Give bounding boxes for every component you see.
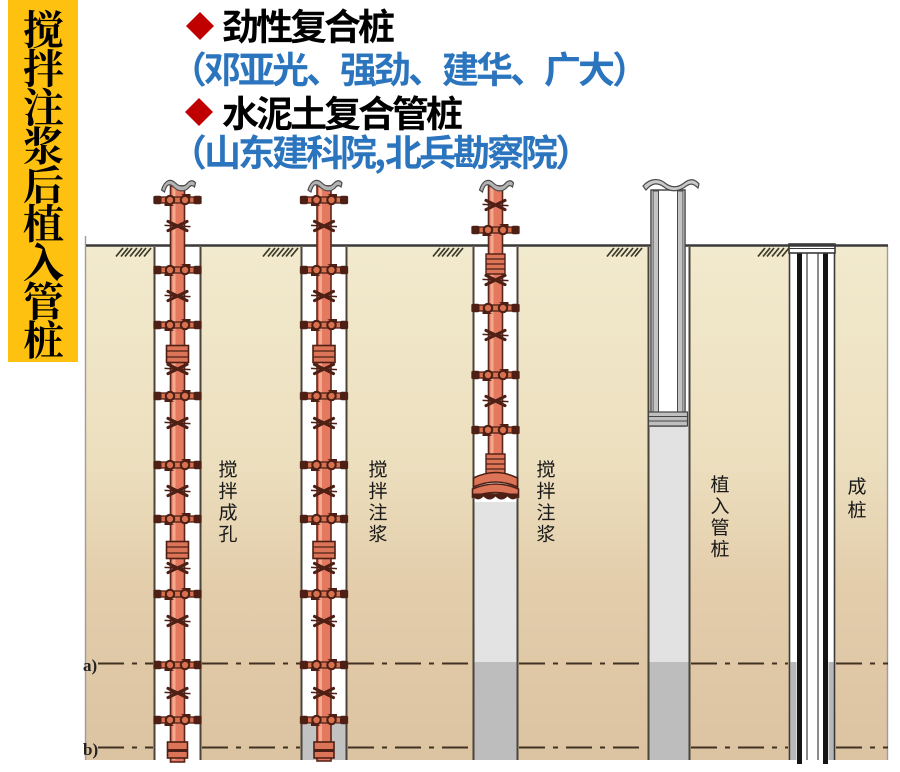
svg-text:a): a)	[83, 656, 97, 675]
svg-text:b): b)	[83, 740, 98, 759]
